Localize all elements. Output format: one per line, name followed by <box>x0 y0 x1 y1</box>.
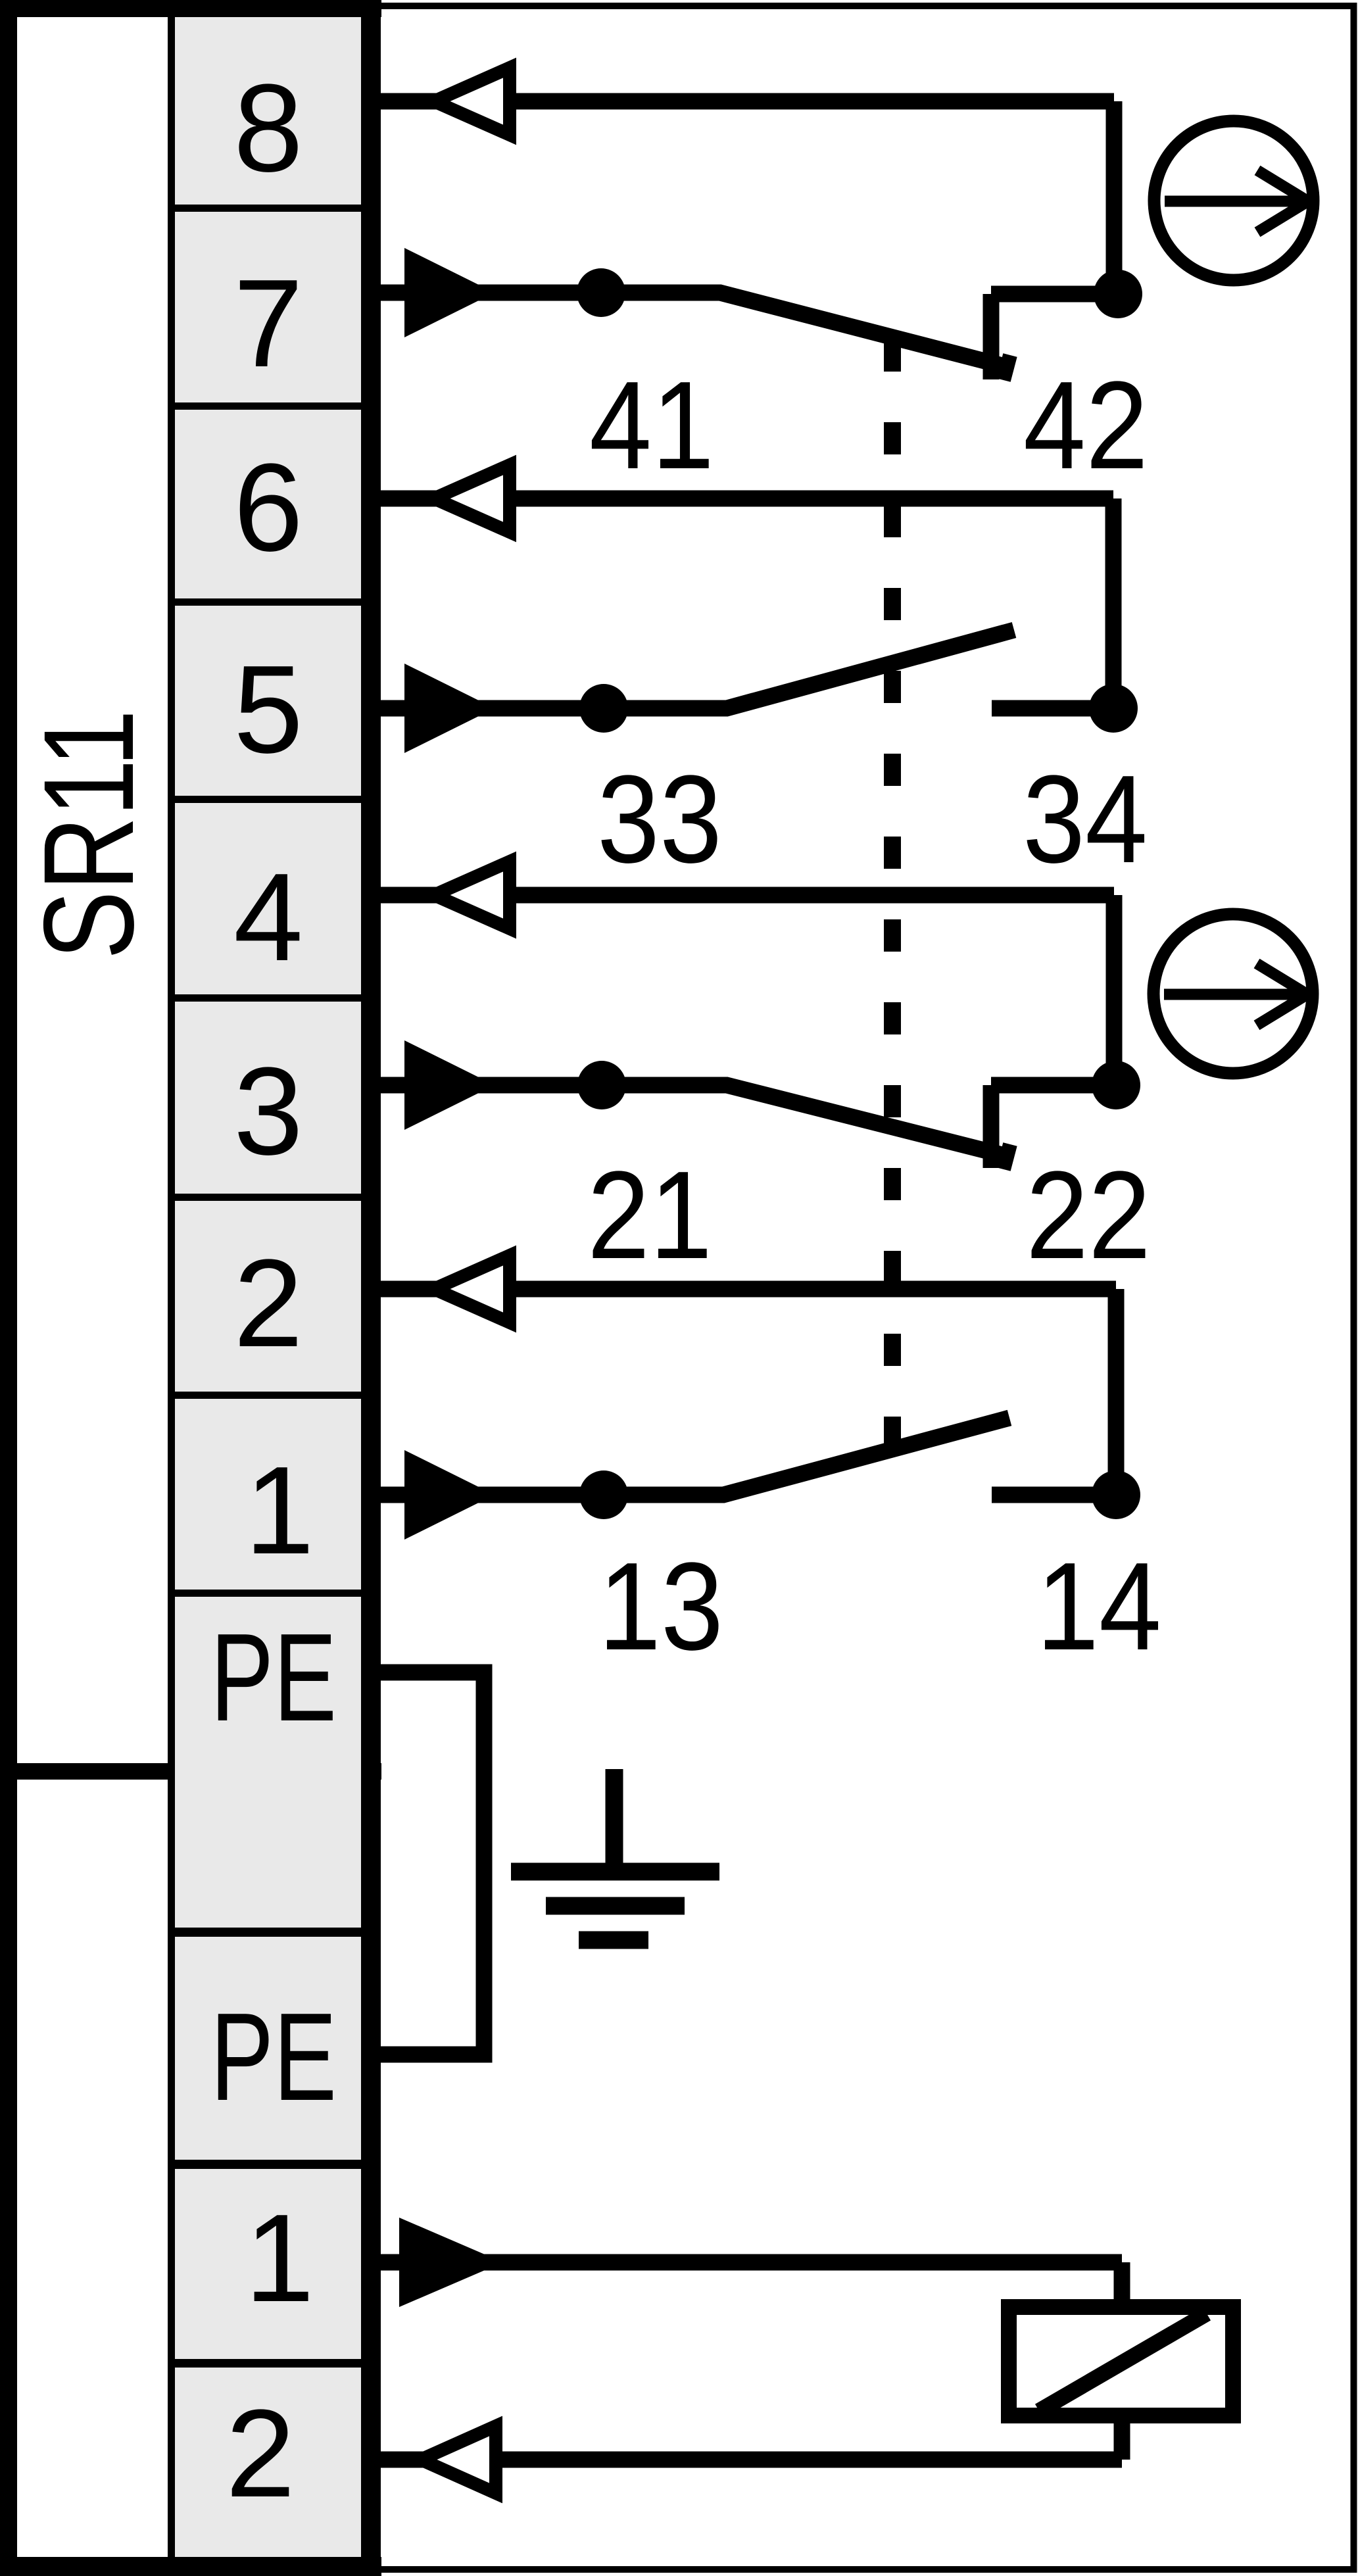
svg-text:2: 2 <box>233 1234 303 1373</box>
svg-text:42: 42 <box>1023 356 1148 495</box>
svg-text:22: 22 <box>1026 1146 1151 1285</box>
svg-text:PE: PE <box>210 1987 337 2127</box>
svg-text:4: 4 <box>233 848 303 987</box>
svg-text:34: 34 <box>1023 750 1148 889</box>
svg-text:SR11: SR11 <box>17 710 160 960</box>
svg-text:3: 3 <box>233 1042 303 1181</box>
svg-text:41: 41 <box>589 356 714 495</box>
svg-text:14: 14 <box>1036 1537 1161 1676</box>
svg-text:13: 13 <box>598 1537 723 1676</box>
svg-text:5: 5 <box>233 640 303 779</box>
svg-text:2: 2 <box>226 2384 295 2523</box>
svg-text:1: 1 <box>245 1441 314 1580</box>
svg-text:21: 21 <box>587 1146 712 1285</box>
svg-text:PE: PE <box>210 1608 337 1747</box>
svg-text:7: 7 <box>233 254 303 393</box>
svg-text:6: 6 <box>233 438 303 577</box>
svg-text:1: 1 <box>245 2189 314 2328</box>
svg-text:33: 33 <box>597 750 722 889</box>
svg-text:8: 8 <box>233 59 303 198</box>
